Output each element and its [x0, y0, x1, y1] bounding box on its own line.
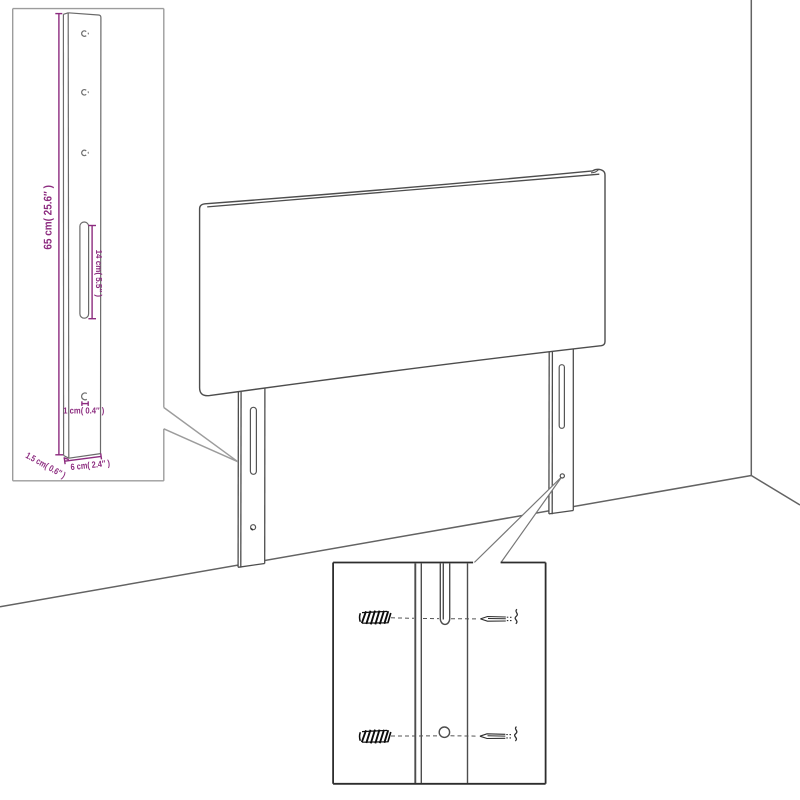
svg-text:14 cm( 5.5″ ): 14 cm( 5.5″ ) [94, 250, 104, 298]
svg-text:65 cm( 25.6″ ): 65 cm( 25.6″ ) [43, 185, 55, 250]
svg-text:1 cm( 0.4″ ): 1 cm( 0.4″ ) [63, 406, 104, 416]
